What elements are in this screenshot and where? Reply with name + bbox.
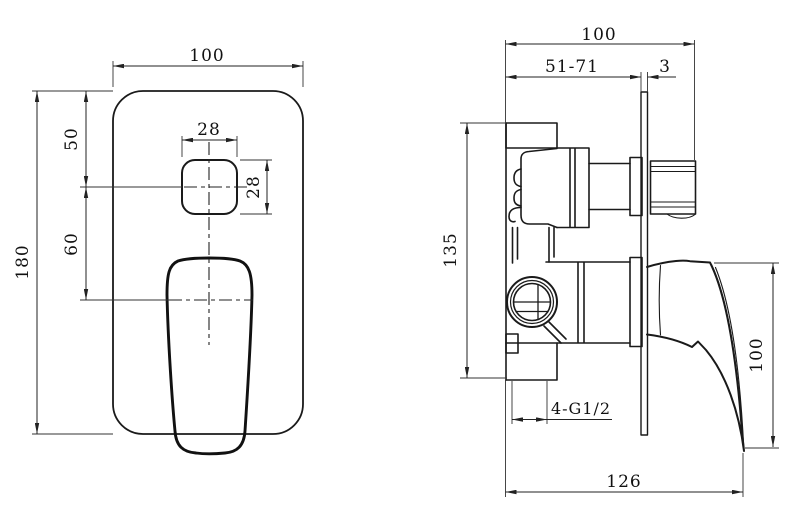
side-dim-overall-height-label: 126	[606, 472, 641, 492]
side-diverter-cup-detents	[509, 169, 521, 222]
side-top-pipe-stub	[506, 123, 557, 148]
side-dim-depth-label: 100	[581, 25, 616, 45]
side-diverter-knob	[651, 161, 696, 214]
front-plate-outline	[113, 91, 303, 434]
side-connector-necks	[513, 228, 555, 264]
side-view: 100 51-71 3 135 100 126 4-G1/2	[441, 25, 779, 497]
side-inlet-port-cross	[514, 285, 550, 320]
side-lower-brace	[544, 322, 566, 343]
side-diverter-flange	[630, 158, 642, 216]
front-dim-28h-label: 28	[244, 175, 264, 199]
front-view: 100 180 50 60 28 28	[13, 46, 303, 454]
side-dim-handle-height-label: 100	[747, 337, 767, 372]
side-cartridge-flange	[630, 258, 642, 347]
side-dim-thread-label: 4-G1/2	[551, 399, 611, 418]
front-dim-plate-height-label: 180	[13, 244, 33, 279]
front-dim-28w-label: 28	[197, 120, 221, 140]
side-dim-roughin-label: 51-71	[545, 57, 599, 77]
side-extension-lines	[460, 40, 779, 497]
side-diverter-cylinder	[557, 148, 589, 228]
front-dim-60-label: 60	[62, 232, 82, 256]
front-dim-plate-width-label: 100	[189, 46, 224, 66]
side-diverter-cup	[521, 149, 557, 228]
technical-drawing: 100 180 50 60 28 28	[0, 0, 800, 524]
side-dim-thickness-label: 3	[659, 57, 671, 77]
side-bottom-stub	[506, 343, 557, 380]
side-handle-outline	[647, 261, 744, 451]
side-dim-body-height-label: 135	[441, 232, 461, 267]
side-knob-ridges	[651, 167, 696, 208]
drawing-canvas: 100 180 50 60 28 28	[0, 0, 800, 524]
side-handle-blade-lines	[659, 265, 744, 449]
side-diverter-stem	[589, 164, 630, 210]
front-dim-50-label: 50	[62, 127, 82, 151]
